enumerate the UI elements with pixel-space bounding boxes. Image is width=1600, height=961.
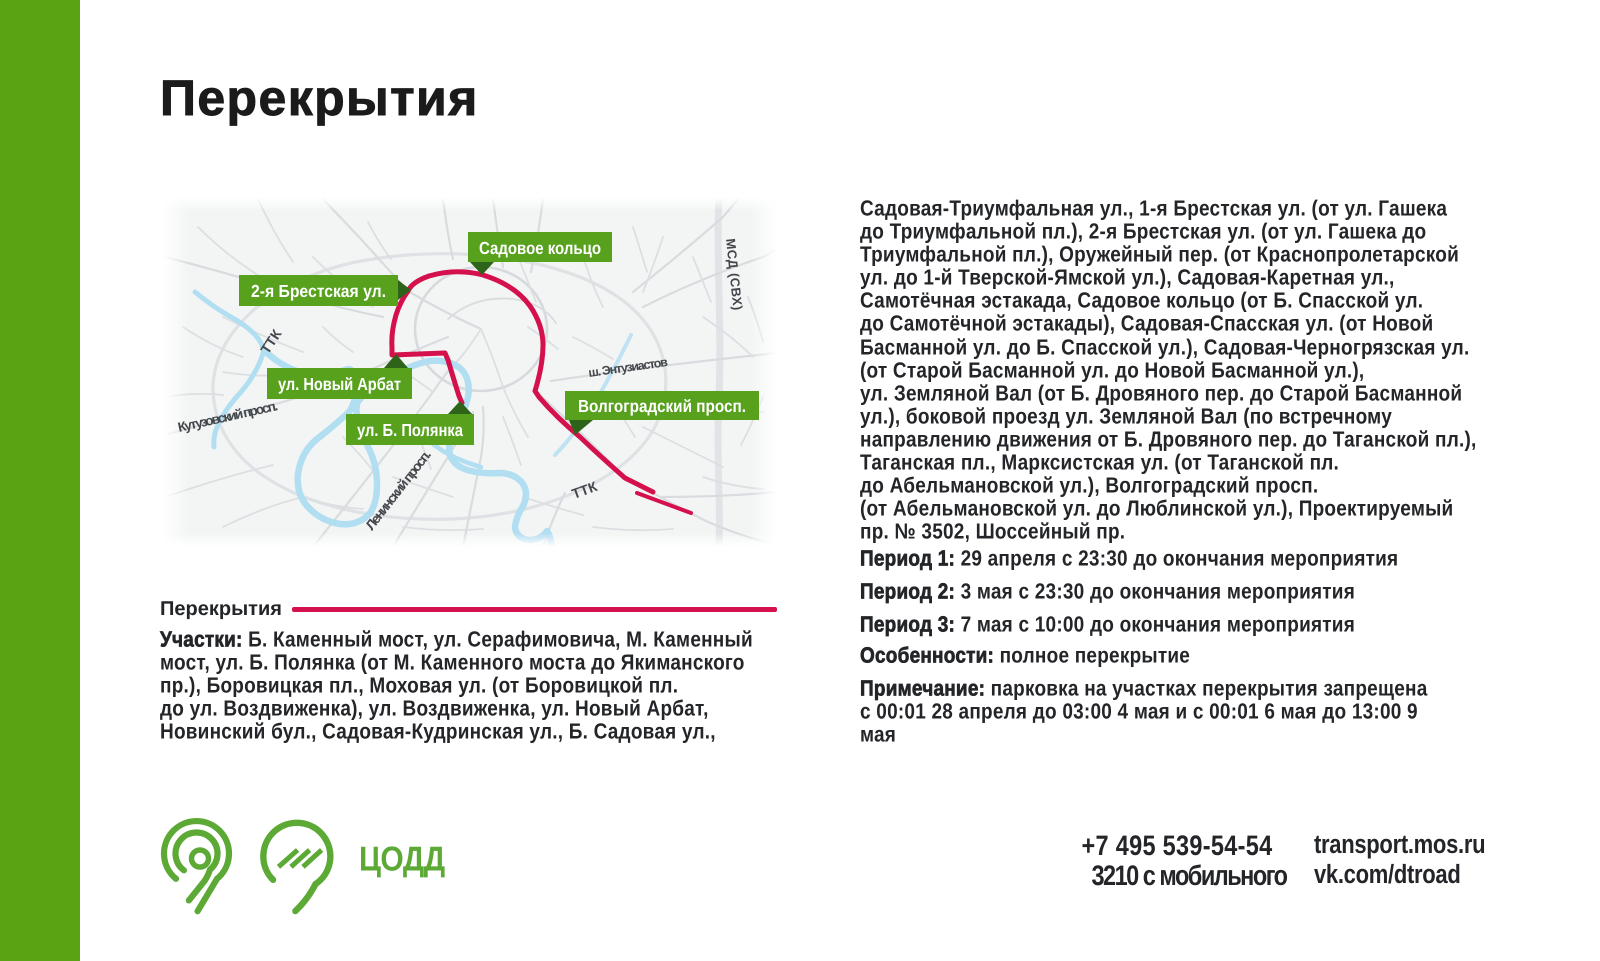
- svg-text:ул. Новый Арбат: ул. Новый Арбат: [278, 374, 401, 394]
- svg-text:Волгоградский просп.: Волгоградский просп.: [578, 396, 746, 416]
- svg-text:ЦОДД: ЦОДД: [359, 841, 445, 879]
- svg-text:2-я Брестская ул.: 2-я Брестская ул.: [251, 281, 386, 301]
- svg-text:Садовое кольцо: Садовое кольцо: [479, 238, 601, 258]
- svg-text:ул. Б. Полянка: ул. Б. Полянка: [357, 420, 463, 440]
